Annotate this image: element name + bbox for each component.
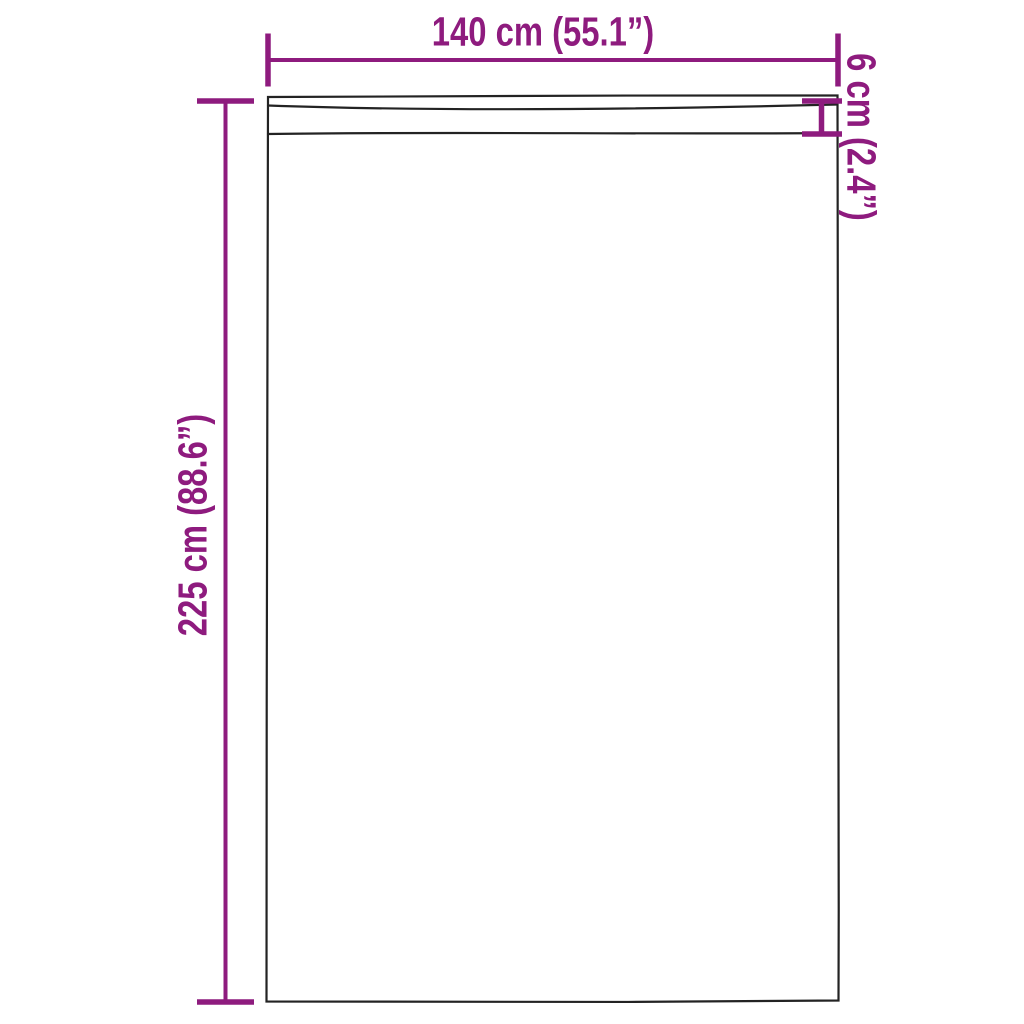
curtain-outline (266, 95, 838, 1002)
rod-pocket-stitch-line (268, 105, 837, 110)
dimension-diagram: 140 cm (55.1”) 225 cm (88.6”) 6 cm (2.4”… (0, 0, 1024, 1024)
height-dimension-label: 225 cm (88.6”) (173, 414, 214, 636)
header-strip-bottom-edge (268, 133, 838, 134)
curtain-drawing (266, 95, 838, 1002)
header-height-dimension-label: 6 cm (2.4”) (841, 53, 882, 221)
width-dimension-label: 140 cm (55.1”) (432, 12, 654, 53)
